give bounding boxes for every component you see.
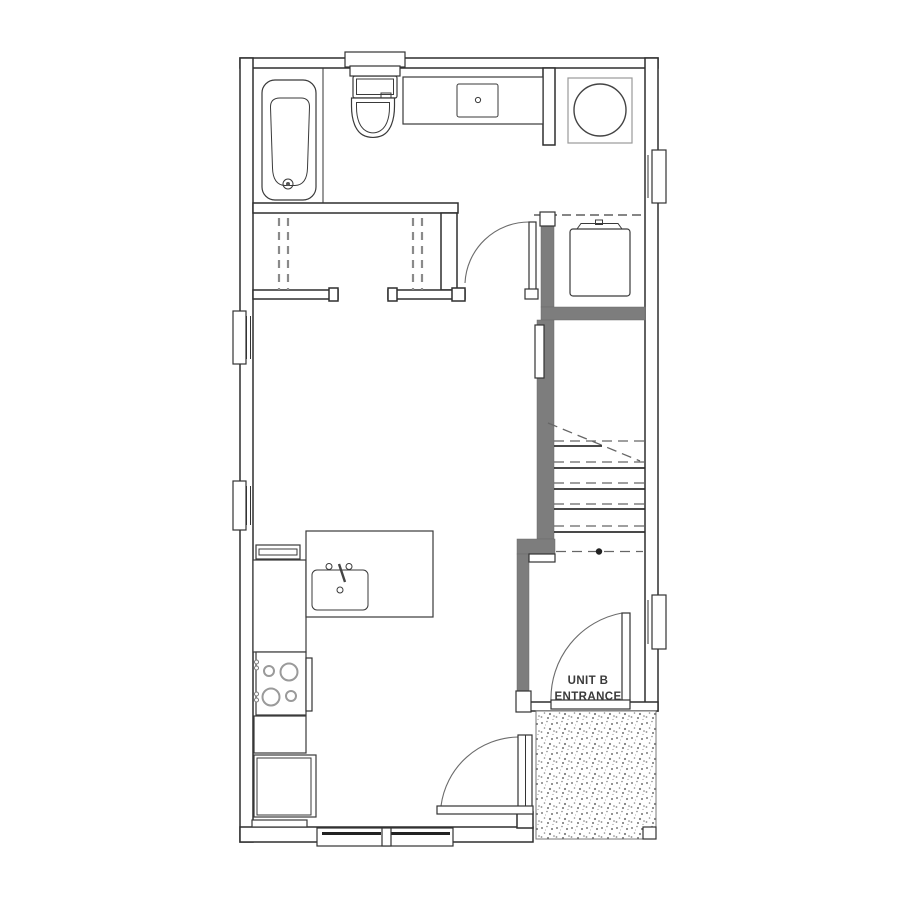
- window-frame: [233, 481, 246, 530]
- closets: [279, 218, 422, 290]
- door-swing-arc: [551, 613, 622, 701]
- range-outline: [256, 652, 306, 715]
- window-bottom-living: [317, 828, 453, 846]
- door-jamb: [525, 289, 538, 299]
- poche-wall: [541, 225, 554, 307]
- floor-plan-canvas: UNIT B ENTRANCE: [0, 0, 900, 900]
- wall-vanity-divider: [543, 68, 555, 145]
- porch-post: [643, 827, 656, 839]
- window-top-bath: [345, 52, 405, 76]
- stairs: [548, 423, 645, 555]
- wall-top: [240, 58, 658, 68]
- floor-plan-page: UNIT B ENTRANCE: [0, 0, 900, 900]
- kitchen-peninsula: [306, 531, 433, 617]
- base-cabinet-run: [253, 560, 306, 652]
- kitchen-shelf: [256, 545, 300, 559]
- door-swing-arc: [441, 737, 518, 806]
- range-handle: [306, 658, 312, 711]
- cased-opening: [535, 325, 544, 378]
- window-mullion: [382, 828, 391, 846]
- door-leaf: [529, 222, 536, 290]
- washer-box: [568, 78, 632, 143]
- window-frame: [652, 595, 666, 649]
- washer-dryer: [568, 78, 632, 143]
- entrance-label-line1: UNIT B: [568, 675, 609, 687]
- wall-cap: [329, 288, 338, 301]
- utility-closet: [570, 220, 630, 296]
- range-stove: [255, 652, 313, 715]
- entrance-label: UNIT B ENTRANCE: [554, 675, 621, 703]
- range-knob-icon: [255, 660, 259, 664]
- wall-entry-north: [529, 554, 555, 562]
- refrigerator: [254, 755, 316, 817]
- poche-wall: [517, 539, 555, 554]
- window-frame: [233, 311, 246, 364]
- stair-newel-dot: [596, 548, 602, 554]
- wall-closet-stub-left: [253, 290, 338, 299]
- base-cabinet: [254, 716, 306, 753]
- bedroom-door: [465, 222, 538, 299]
- stair-break-line: [548, 423, 640, 461]
- range-knob-icon: [255, 692, 259, 696]
- poche-wall-entry: [517, 554, 529, 692]
- window-frame: [652, 150, 666, 203]
- range-knob-icon: [255, 698, 259, 702]
- door-open-leaf: [437, 806, 533, 814]
- entry-stoop: [536, 711, 656, 839]
- wall-cap: [516, 691, 531, 712]
- vanity: [403, 77, 543, 124]
- window-sill: [350, 66, 400, 76]
- window-frame: [345, 52, 405, 67]
- wall-closet-right: [441, 213, 457, 290]
- door-swing-arc: [465, 222, 529, 283]
- entrance-label-line2: ENTRANCE: [554, 691, 621, 703]
- bathtub: [262, 80, 316, 200]
- wall-cap: [452, 288, 465, 301]
- wall-cap: [540, 212, 555, 226]
- range-knob-icon: [255, 666, 259, 670]
- cabinet-toe-kick: [252, 820, 307, 827]
- wall-bath-south: [253, 203, 458, 213]
- poche-wall: [541, 307, 645, 320]
- refrigerator-outline: [254, 755, 316, 817]
- kitchen: [252, 531, 433, 827]
- bathroom: [262, 76, 632, 200]
- toilet: [352, 76, 398, 137]
- door-leaf: [622, 613, 630, 701]
- wall-left: [240, 58, 253, 842]
- tub-drain-icon: [286, 182, 290, 186]
- stoop-concrete: [536, 711, 656, 839]
- patio-door: [437, 735, 533, 814]
- wall-cap: [388, 288, 397, 301]
- water-heater: [570, 229, 630, 296]
